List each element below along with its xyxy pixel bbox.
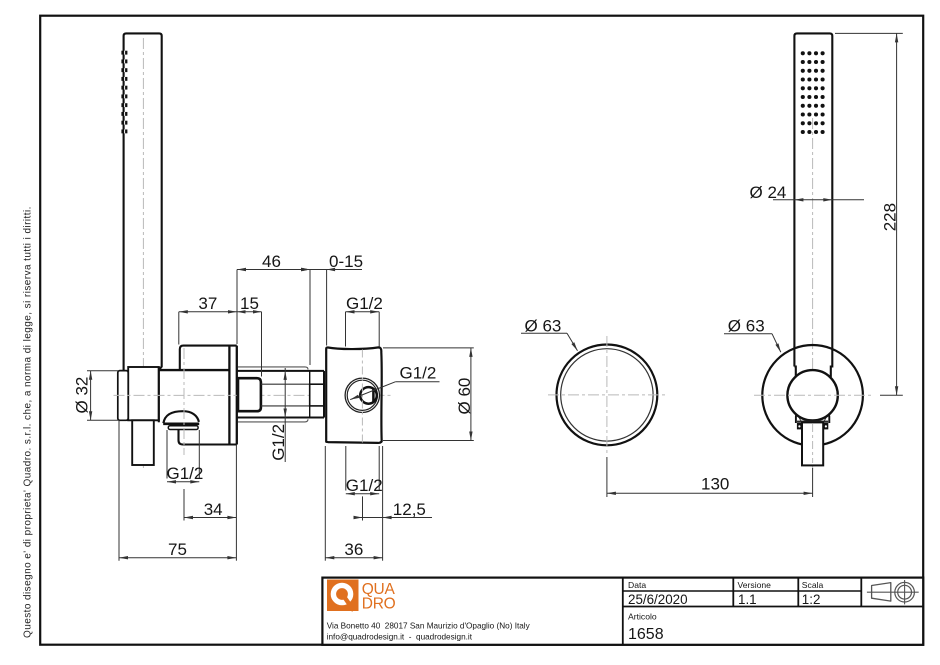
svg-text:Ø 32: Ø 32 bbox=[73, 377, 92, 414]
svg-text:75: 75 bbox=[168, 540, 187, 559]
svg-text:1.1: 1.1 bbox=[738, 592, 757, 607]
svg-text:228: 228 bbox=[880, 203, 899, 231]
svg-text:Articolo: Articolo bbox=[628, 611, 657, 621]
svg-text:Data: Data bbox=[628, 580, 646, 590]
svg-text:info@quadrodesign.it - quadr: info@quadrodesign.it - quadrodesign.it bbox=[327, 633, 473, 642]
svg-text:37: 37 bbox=[198, 294, 217, 313]
svg-text:12,5: 12,5 bbox=[393, 500, 426, 519]
svg-text:G1/2: G1/2 bbox=[346, 294, 383, 313]
svg-text:Via Bonetto 40 28017 San Maur: Via Bonetto 40 28017 San Maurizio d'Opag… bbox=[327, 622, 531, 631]
svg-text:Versione: Versione bbox=[738, 580, 772, 590]
svg-text:36: 36 bbox=[344, 540, 363, 559]
svg-text:Questo disegno e' di proprieta: Questo disegno e' di proprieta' Quadro. … bbox=[23, 206, 34, 638]
svg-text:Ø 60: Ø 60 bbox=[455, 378, 474, 415]
svg-text:15: 15 bbox=[240, 294, 259, 313]
svg-text:Ø 63: Ø 63 bbox=[728, 316, 765, 335]
svg-text:1658: 1658 bbox=[628, 626, 664, 643]
svg-text:34: 34 bbox=[204, 500, 223, 519]
svg-text:25/6/2020: 25/6/2020 bbox=[628, 592, 688, 607]
svg-text:Ø 63: Ø 63 bbox=[525, 316, 562, 335]
svg-text:Scala: Scala bbox=[802, 580, 824, 590]
svg-text:Ø 24: Ø 24 bbox=[750, 183, 787, 202]
svg-text:0-15: 0-15 bbox=[329, 252, 363, 271]
svg-text:1:2: 1:2 bbox=[802, 592, 821, 607]
svg-text:46: 46 bbox=[262, 252, 281, 271]
svg-text:G1/2: G1/2 bbox=[346, 476, 383, 495]
svg-text:G1/2: G1/2 bbox=[167, 464, 204, 483]
svg-text:G1/2: G1/2 bbox=[269, 424, 288, 461]
svg-text:DRO: DRO bbox=[362, 595, 396, 612]
svg-text:G1/2: G1/2 bbox=[400, 364, 437, 383]
svg-text:130: 130 bbox=[701, 474, 729, 493]
